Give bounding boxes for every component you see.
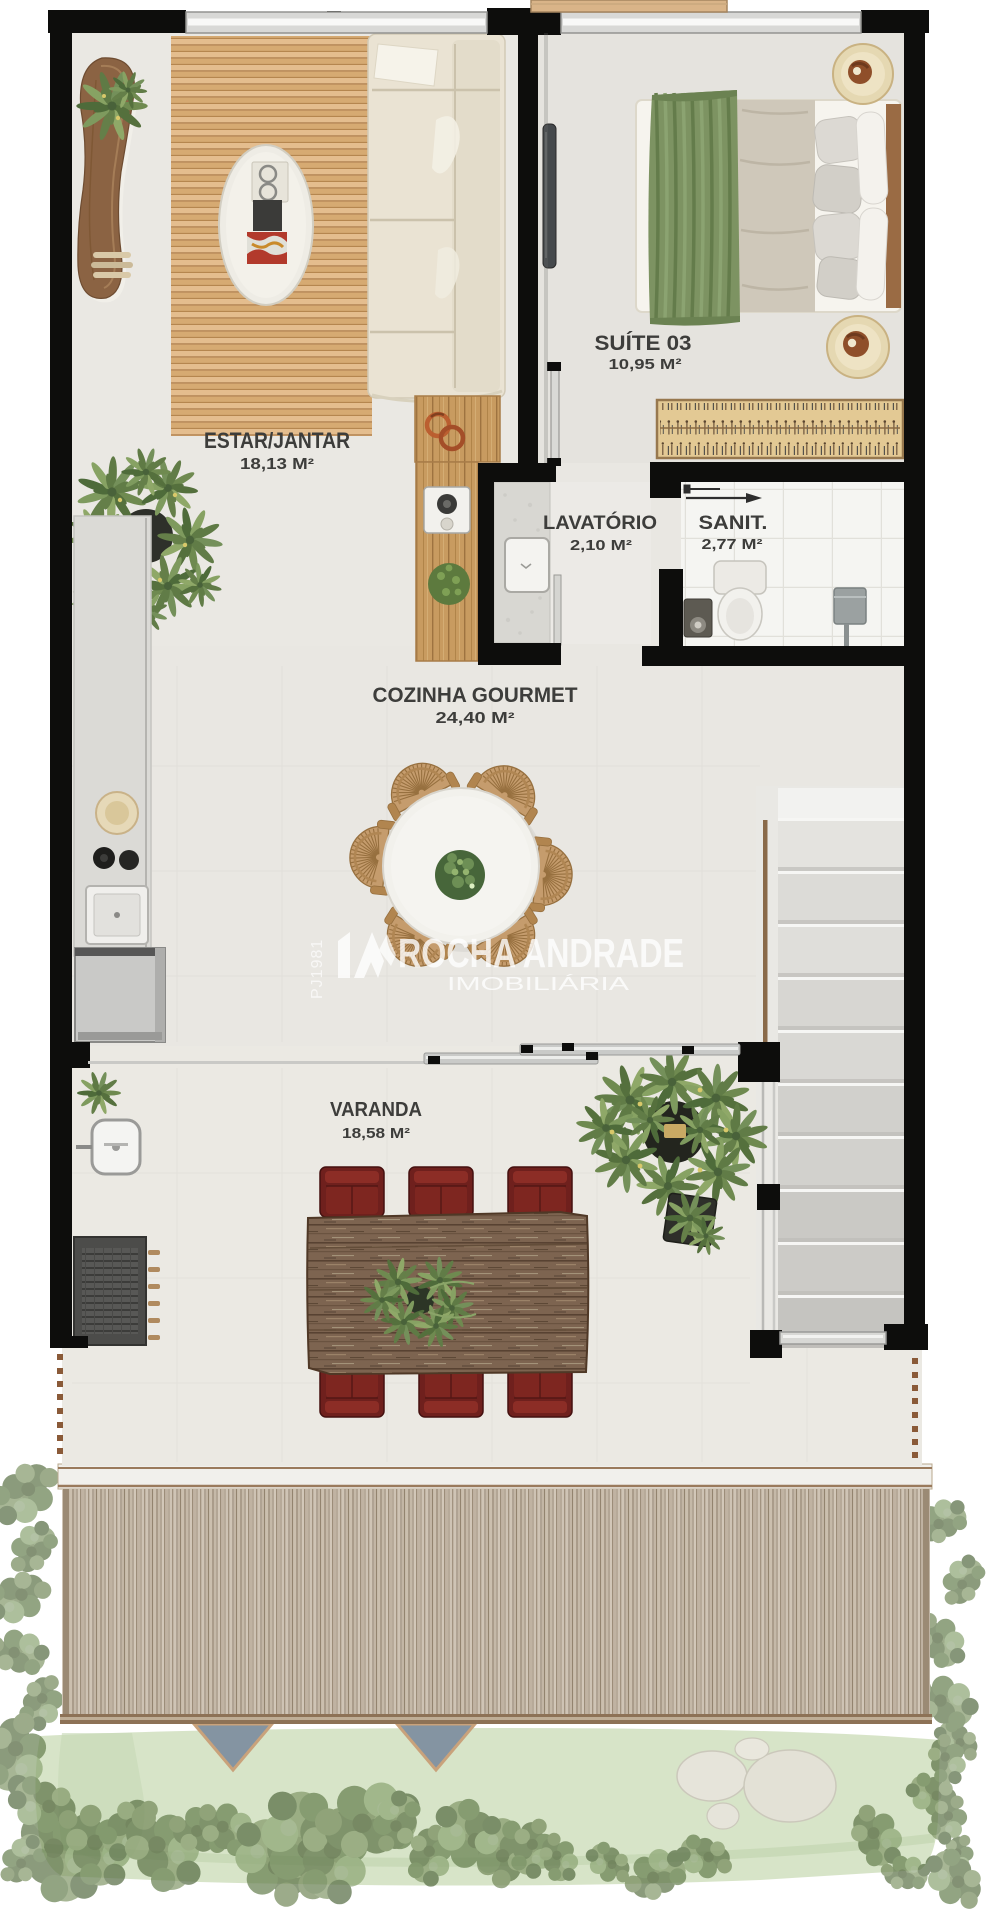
svg-text:ESTAR/JANTAR: ESTAR/JANTAR xyxy=(204,428,350,453)
svg-text:2,77 M²: 2,77 M² xyxy=(702,537,763,553)
svg-text:ROCHA ANDRADE: ROCHA ANDRADE xyxy=(398,930,684,976)
svg-text:18,13 M²: 18,13 M² xyxy=(240,456,314,473)
svg-text:2,10 M²: 2,10 M² xyxy=(570,538,632,554)
svg-text:PJ1981: PJ1981 xyxy=(309,939,326,999)
svg-text:SANIT.: SANIT. xyxy=(699,513,768,534)
svg-text:VARANDA: VARANDA xyxy=(330,1099,422,1121)
svg-text:COZINHA GOURMET: COZINHA GOURMET xyxy=(373,683,578,707)
svg-text:18,58 M²: 18,58 M² xyxy=(342,1126,410,1142)
svg-text:SUÍTE 03: SUÍTE 03 xyxy=(595,332,692,355)
svg-text:IMOBILIÁRIA: IMOBILIÁRIA xyxy=(447,974,629,994)
svg-text:10,95 M²: 10,95 M² xyxy=(609,356,682,373)
svg-text:LAVATÓRIO: LAVATÓRIO xyxy=(543,512,657,534)
svg-text:24,40 M²: 24,40 M² xyxy=(436,710,515,727)
